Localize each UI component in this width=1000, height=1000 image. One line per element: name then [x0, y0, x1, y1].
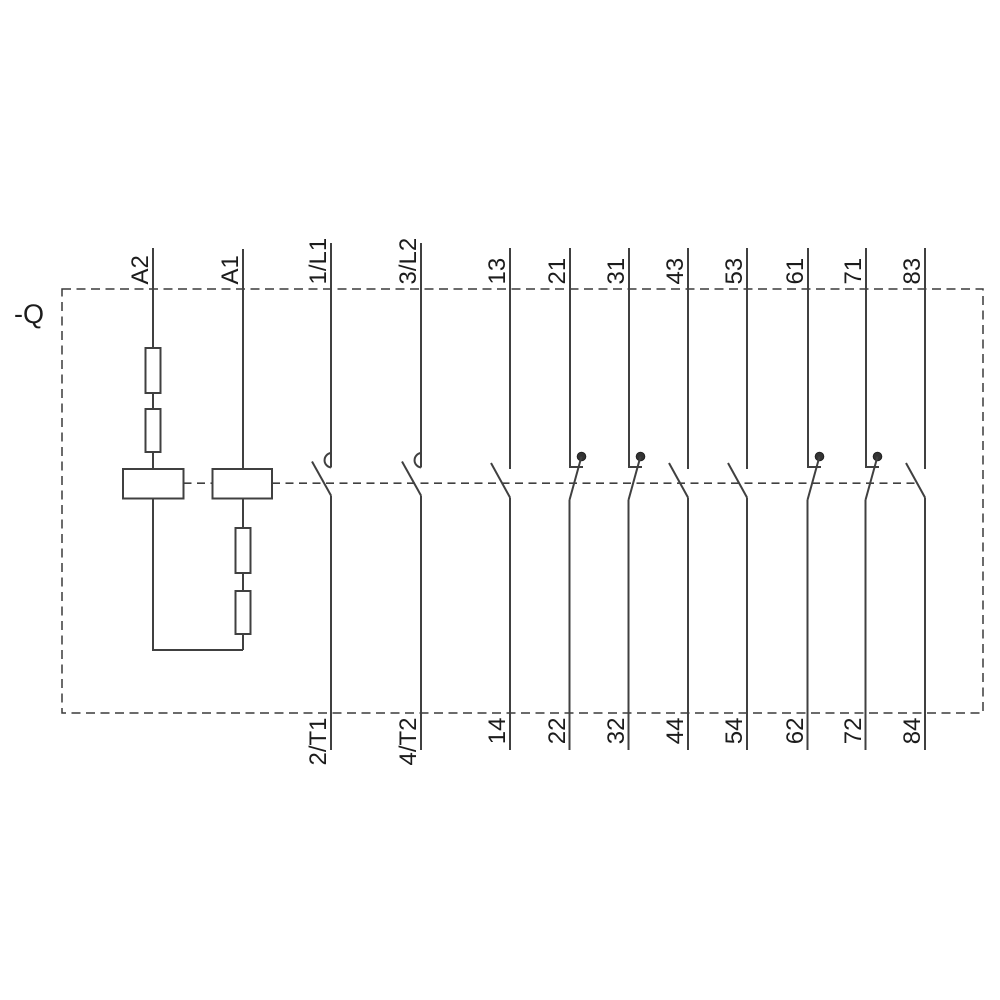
pole-31: 3132 — [603, 248, 645, 750]
pole-61: 6162 — [782, 248, 824, 750]
pole-83: 8384 — [899, 248, 926, 750]
pole-21: 2122 — [544, 248, 586, 750]
terminal-label-top: 13 — [484, 258, 511, 285]
coil-feed-wire-a2 — [153, 248, 243, 650]
terminal-label-top: 83 — [899, 258, 926, 285]
pole-1-L1: 1/L12/T1 — [305, 238, 332, 766]
terminal-label-top: 3/L2 — [395, 238, 422, 285]
terminal-label-bottom: 4/T2 — [395, 718, 422, 766]
contact-blade — [866, 457, 878, 501]
pole-43: 4344 — [662, 248, 689, 750]
terminal-label-bottom: 2/T1 — [305, 718, 332, 766]
terminal-label-bottom: 22 — [544, 718, 571, 745]
suppressor-resistor — [146, 348, 161, 393]
terminal-label-top: 61 — [782, 258, 809, 285]
contact-blade — [808, 457, 820, 501]
terminal-label-bottom: 14 — [484, 718, 511, 745]
coil-box — [213, 469, 273, 499]
terminal-label-a2: A2 — [127, 255, 154, 284]
contact-blade — [491, 463, 510, 498]
top-terminal-wire — [808, 248, 821, 467]
terminal-label-bottom: 44 — [662, 718, 689, 745]
device-designation: -Q — [14, 299, 44, 329]
terminal-label-top: 53 — [721, 258, 748, 285]
coil-box — [123, 469, 184, 499]
contact-blade — [906, 463, 925, 498]
terminal-label-bottom: 84 — [899, 718, 926, 745]
contactor-wiring-diagram: -Q A2 A1 1/L12/T13/L24/T2131421223132434… — [0, 0, 1000, 1000]
terminal-label-top: 21 — [544, 258, 571, 285]
coil-circuit: A2 A1 — [123, 248, 272, 650]
contact-blade — [629, 457, 641, 501]
pole-13: 1314 — [484, 248, 511, 750]
top-terminal-wire — [629, 248, 642, 467]
suppressor-resistor — [146, 409, 161, 452]
contact-blade — [570, 457, 582, 501]
terminal-label-bottom: 54 — [721, 718, 748, 745]
pole-71: 7172 — [840, 248, 882, 750]
terminal-label-bottom: 32 — [603, 718, 630, 745]
terminal-label-top: 71 — [840, 258, 867, 285]
pole-53: 5354 — [721, 248, 748, 750]
contact-blade — [728, 463, 747, 498]
top-terminal-wire — [866, 248, 879, 467]
terminal-label-a1: A1 — [217, 255, 244, 284]
contact-blade — [669, 463, 688, 498]
terminal-label-top: 43 — [662, 258, 689, 285]
schematic-canvas: -Q A2 A1 1/L12/T13/L24/T2131421223132434… — [0, 0, 1000, 1000]
contact-poles: 1/L12/T13/L24/T2131421223132434453546162… — [305, 238, 926, 766]
terminal-label-top: 31 — [603, 258, 630, 285]
pole-3-L2: 3/L24/T2 — [395, 238, 422, 766]
top-terminal-wire — [570, 248, 583, 467]
terminal-label-bottom: 72 — [840, 718, 867, 745]
suppressor-resistor — [236, 591, 251, 634]
terminal-label-top: 1/L1 — [305, 238, 332, 285]
terminal-label-bottom: 62 — [782, 718, 809, 745]
suppressor-resistor — [236, 528, 251, 573]
